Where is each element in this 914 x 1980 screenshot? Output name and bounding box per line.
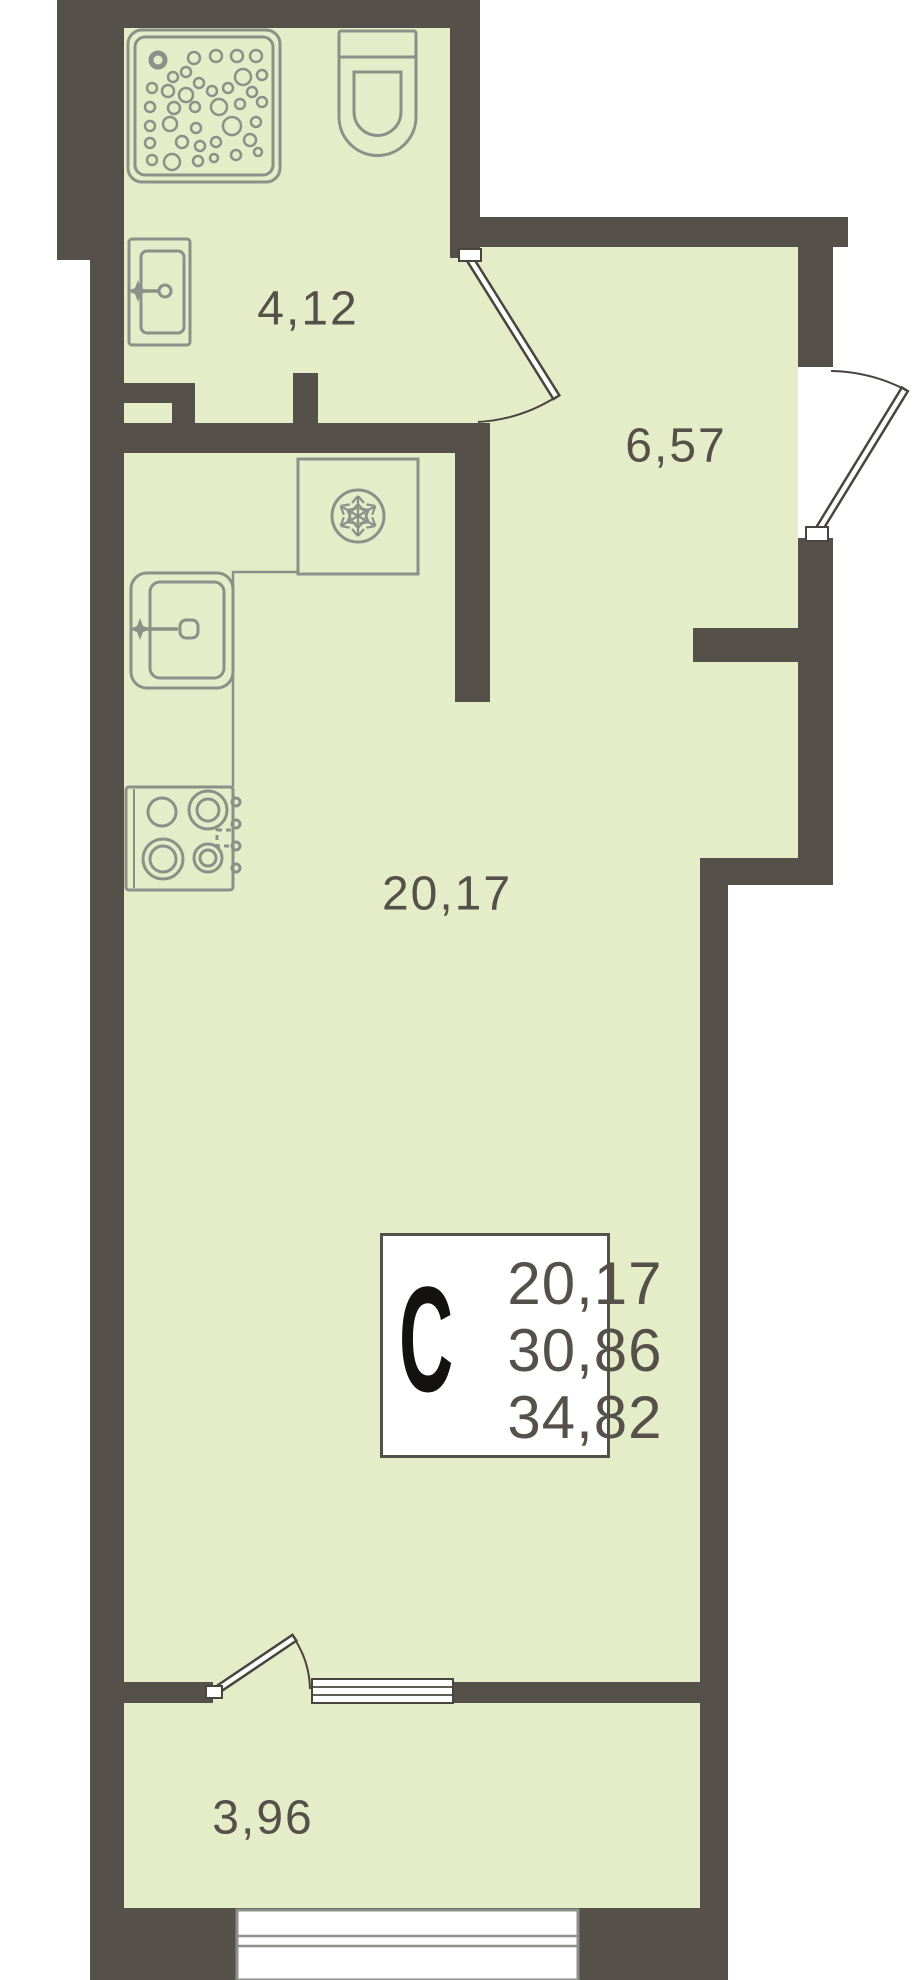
area-label-bathroom: 4,12	[257, 282, 358, 337]
wall-right-upper	[798, 247, 833, 367]
wall-hall-top	[480, 217, 848, 247]
balcony-exterior-window	[237, 1910, 578, 1980]
apartment-type-letter: С	[399, 1264, 453, 1414]
wall-stub-right	[693, 628, 833, 662]
area-label-hallway: 6,57	[625, 419, 726, 474]
area-summary-box: С 20,17 30,86 34,82	[380, 1233, 610, 1458]
area-label-balcony: 3,96	[212, 1791, 313, 1846]
wall-stub-bathroom	[293, 373, 318, 423]
wall-niche-b	[172, 403, 195, 423]
floorplan-drawing	[0, 0, 914, 1980]
wall-bathroom-right	[450, 0, 480, 258]
floorplan: 4,12 6,57 20,17 3,96 С 20,17 30,86 34,82	[0, 0, 914, 1980]
summary-values: 20,17 30,86 34,82	[507, 1236, 670, 1455]
balcony-window	[312, 1679, 453, 1703]
summary-overall-area: 34,82	[507, 1384, 662, 1451]
wall-left-upper	[57, 0, 124, 260]
wall-niche-a	[124, 383, 195, 403]
summary-total-area: 30,86	[507, 1317, 662, 1384]
wall-balcony-divider-right	[453, 1682, 728, 1703]
wall-kitchen-divider	[455, 453, 490, 702]
area-label-living: 20,17	[382, 867, 512, 922]
wall-right-step	[700, 858, 833, 885]
wall-bathroom-bottom	[124, 423, 490, 453]
wall-right-mid-lower	[798, 662, 833, 858]
summary-living-area: 20,17	[507, 1250, 662, 1317]
wall-balcony-divider-left	[124, 1682, 213, 1703]
wall-left-lower	[90, 260, 124, 1908]
wall-right-lower	[700, 885, 728, 1908]
wall-right-mid	[798, 538, 833, 628]
